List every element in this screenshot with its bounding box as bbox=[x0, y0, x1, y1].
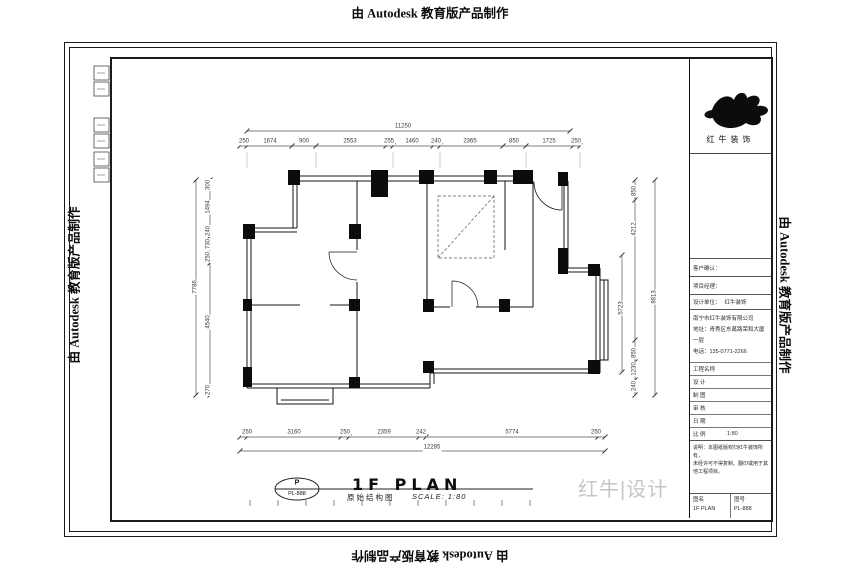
dim-label: 1230 bbox=[632, 361, 639, 376]
notes-line: 说明：本图纸版权归红牛装饰所有， bbox=[693, 444, 768, 460]
dim-label: 255 bbox=[383, 139, 395, 146]
row-label: 比 例 bbox=[690, 430, 727, 438]
dim-label: 8813 bbox=[652, 289, 659, 304]
dim-label: 1494 bbox=[206, 199, 213, 214]
title-block-row: 工程名称 bbox=[690, 362, 771, 375]
dim-label: 250 bbox=[590, 430, 602, 437]
row-label: 工程名称 bbox=[690, 365, 727, 373]
dim-label: 4212 bbox=[632, 221, 639, 236]
dim-label: 4540 bbox=[206, 314, 213, 329]
sheet-number-cell: 图号 PL-888 bbox=[730, 494, 771, 518]
sheet-name-cell: 图名 1F PLAN bbox=[690, 494, 730, 518]
title-block-sign-row: 项目经理： bbox=[690, 276, 771, 294]
plan-tag-code: PL-888 bbox=[288, 491, 306, 497]
dim-label: 300 bbox=[206, 179, 213, 191]
title-block-row: 制 图 bbox=[690, 388, 771, 401]
plan-tag-letter: P bbox=[295, 480, 300, 487]
dim-label: 250 bbox=[570, 139, 582, 146]
title-block-notes: 说明：本图纸版权归红牛装饰所有， 未经许可不得复制、翻印或用于其 他工程项目。 bbox=[690, 440, 771, 493]
sheet-number-label: 图号 bbox=[734, 496, 768, 505]
title-block-bottom-row: 图名 1F PLAN 图号 PL-888 bbox=[690, 493, 771, 518]
dim-label: 2553 bbox=[342, 139, 357, 146]
dim-label: 240 bbox=[632, 380, 639, 392]
row-label: 制 图 bbox=[690, 391, 727, 399]
title-block-logo-box: 红牛装饰 bbox=[690, 57, 771, 154]
cad-plot-page: 由 Autodesk 教育版产品制作 由 Autodesk 教育版产品制作 由 … bbox=[0, 0, 860, 580]
title-block-sign-row: 客户确认： bbox=[690, 258, 771, 276]
title-block: 红牛装饰 客户确认： 项目经理： 设计单位： 红牛装饰 南宁市红牛装饰有限公司 … bbox=[689, 57, 771, 518]
watermark-right: 由 Autodesk 教育版产品制作 bbox=[777, 217, 796, 374]
dim-label: 242 bbox=[415, 430, 427, 437]
dim-label: 5723 bbox=[619, 300, 626, 315]
dim-label: 850 bbox=[632, 185, 639, 197]
brand-logo-text: 红牛装饰 bbox=[707, 134, 755, 145]
dim-label: 900 bbox=[298, 139, 310, 146]
title-block-unit-row: 设计单位： 红牛装饰 bbox=[690, 294, 771, 309]
unit-row-value: 红牛装饰 bbox=[725, 298, 747, 306]
dim-label: 270 bbox=[206, 384, 213, 396]
row-label: 审 核 bbox=[690, 404, 727, 412]
sheet-name-label: 图名 bbox=[693, 496, 727, 505]
unit-row-label: 设计单位： bbox=[693, 298, 721, 306]
row-value: 1:80 bbox=[727, 431, 771, 437]
title-block-row: 比 例 1:80 bbox=[690, 427, 771, 440]
dim-label: 11250 bbox=[394, 124, 412, 131]
plan-scale: SCALE: 1:80 bbox=[412, 492, 466, 501]
dim-label: 730 bbox=[206, 238, 213, 250]
company-info: 南宁市红牛装饰有限公司 地址：青秀区东葛路荣和大厦一层 电话：135-0771-… bbox=[690, 309, 771, 362]
company-line: 南宁市红牛装饰有限公司 bbox=[693, 314, 768, 325]
dim-label: 250 bbox=[238, 139, 250, 146]
dim-label: 2359 bbox=[376, 430, 391, 437]
dim-label: 240 bbox=[430, 139, 442, 146]
dim-label: 3160 bbox=[286, 430, 301, 437]
dim-label: 250 bbox=[241, 430, 253, 437]
dim-label: 850 bbox=[632, 347, 639, 359]
row-label: 设 计 bbox=[690, 378, 727, 386]
dim-label: 240 bbox=[206, 225, 213, 237]
company-line: 地址：青秀区东葛路荣和大厦一层 bbox=[693, 325, 768, 347]
sheet-name-value: 1F PLAN bbox=[693, 505, 727, 514]
sheet-number-value: PL-888 bbox=[734, 505, 768, 514]
dim-label: 850 bbox=[508, 139, 520, 146]
title-block-row: 日 期 bbox=[690, 414, 771, 427]
notes-line: 未经许可不得复制、翻印或用于其 bbox=[693, 460, 768, 468]
brand-gray-watermark: 红牛|设计 bbox=[578, 473, 668, 502]
title-block-row: 审 核 bbox=[690, 401, 771, 414]
title-block-row: 设 计 bbox=[690, 375, 771, 388]
dim-label: 250 bbox=[339, 430, 351, 437]
dim-label: 5774 bbox=[504, 430, 519, 437]
row-label: 日 期 bbox=[690, 417, 727, 425]
dim-label: 1460 bbox=[404, 139, 419, 146]
dim-label: 7786 bbox=[193, 279, 200, 294]
dim-label: 1674 bbox=[262, 139, 277, 146]
company-line: 电话：135-0771-2266 bbox=[693, 347, 768, 358]
notes-line: 他工程项目。 bbox=[693, 468, 768, 476]
dim-label: 250 bbox=[206, 251, 213, 263]
sign-row-label: 项目经理： bbox=[693, 282, 721, 290]
dim-label: 2365 bbox=[462, 139, 477, 146]
watermark-top: 由 Autodesk 教育版产品制作 bbox=[352, 3, 509, 22]
watermark-bottom: 由 Autodesk 教育版产品制作 bbox=[352, 548, 509, 567]
drawing-frame bbox=[110, 57, 773, 522]
plan-subtitle: 原始结构图 bbox=[347, 492, 395, 503]
dim-label: 12285 bbox=[423, 445, 442, 452]
dim-label: 1725 bbox=[541, 139, 556, 146]
sign-row-label: 客户确认： bbox=[693, 264, 721, 272]
